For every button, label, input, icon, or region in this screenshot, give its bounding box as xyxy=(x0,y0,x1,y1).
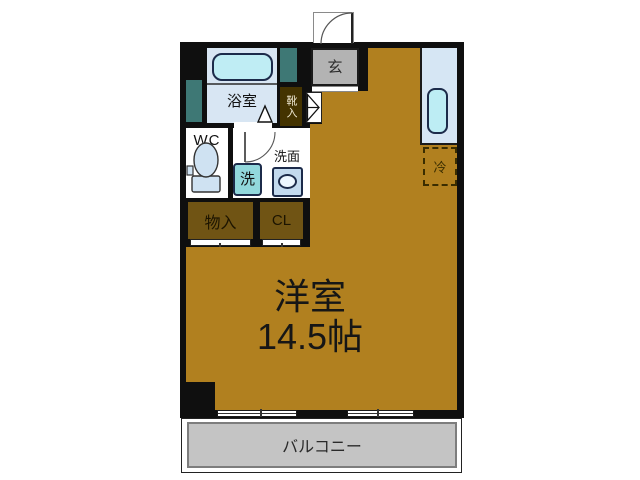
kitchen-sink-icon xyxy=(427,88,448,134)
sliding-window-left xyxy=(217,410,297,417)
duct-box-left xyxy=(186,80,202,122)
entrance-door-swing-box xyxy=(313,12,354,43)
storage-label: 物入 xyxy=(188,202,253,239)
washbasin-bowl xyxy=(278,174,297,189)
main-room-size: 14.5帖 xyxy=(257,317,363,357)
entrance-label: 玄 xyxy=(311,48,359,84)
bathtub-icon xyxy=(212,53,273,81)
bifold-door xyxy=(306,92,322,123)
floor-plan: 浴室 靴入 玄 WC 洗 洗面 物入 CL 冷 バルコニー 洋室 14.5帖 xyxy=(0,0,640,480)
balcony-label: バルコニー xyxy=(187,422,457,468)
closet-label: CL xyxy=(260,202,303,239)
main-room-name: 洋室 xyxy=(274,277,346,317)
main-room-label: 洋室 14.5帖 xyxy=(240,274,380,360)
storage-sliding-door xyxy=(190,239,251,246)
washroom-label: 洗面 xyxy=(264,147,310,163)
wc-label: WC xyxy=(188,131,226,149)
fridge-label: 冷 xyxy=(423,147,457,186)
duct-box-top xyxy=(280,48,297,82)
washing-machine-label: 洗 xyxy=(233,163,262,194)
closet-sliding-door xyxy=(262,239,301,246)
bathroom-label: 浴室 xyxy=(207,90,277,110)
sliding-window-right xyxy=(347,410,414,417)
shoe-cabinet-label: 靴入 xyxy=(280,88,302,125)
